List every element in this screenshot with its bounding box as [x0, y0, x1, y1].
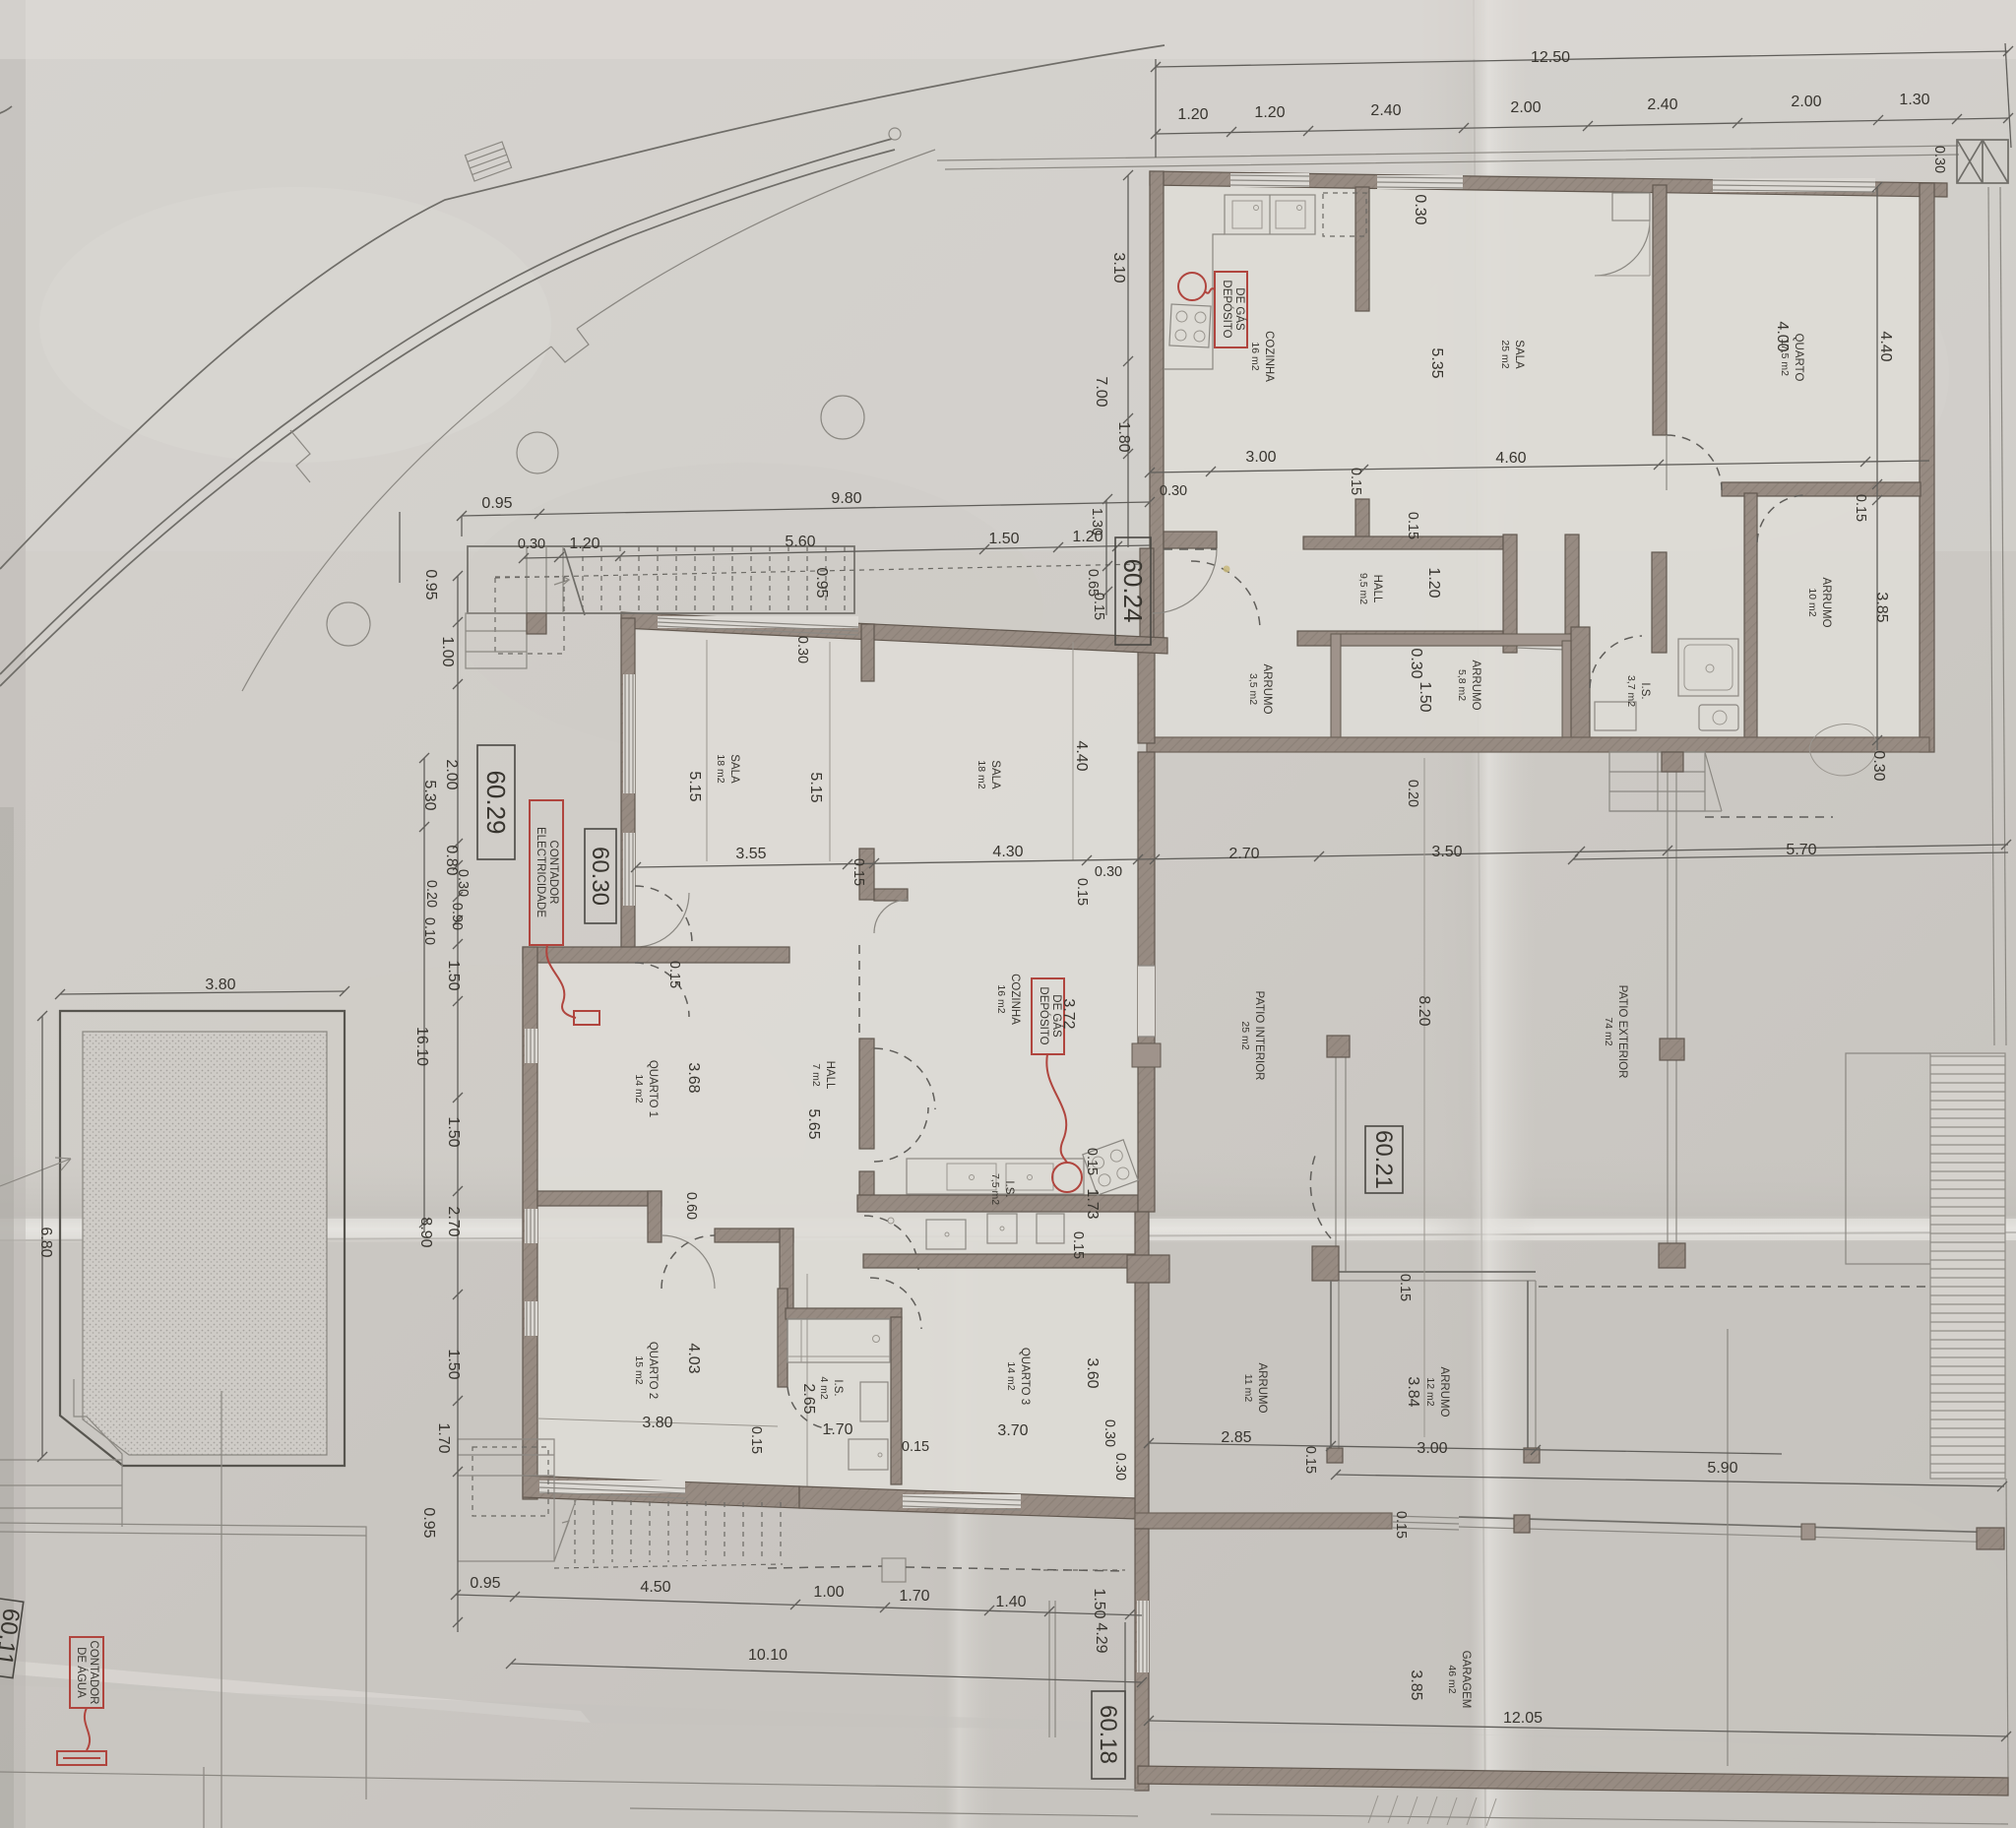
svg-text:12 m2: 12 m2	[1424, 1377, 1436, 1406]
svg-text:1.50: 1.50	[1091, 1588, 1107, 1618]
svg-text:3,5 m2: 3,5 m2	[1247, 673, 1259, 705]
svg-text:14 m2: 14 m2	[633, 1074, 645, 1103]
svg-text:2.00: 2.00	[1791, 94, 1821, 110]
svg-text:5.65: 5.65	[805, 1108, 822, 1139]
svg-text:0.95: 0.95	[813, 567, 830, 598]
svg-text:0.15: 0.15	[1393, 1511, 1409, 1539]
svg-text:1.80: 1.80	[1115, 421, 1132, 452]
svg-text:8.20: 8.20	[1416, 995, 1432, 1026]
svg-text:4.40: 4.40	[1877, 331, 1894, 361]
svg-text:1.40: 1.40	[995, 1594, 1026, 1610]
svg-text:0.30: 0.30	[1160, 483, 1187, 499]
svg-text:0.15: 0.15	[1853, 494, 1868, 522]
svg-text:0.30: 0.30	[1931, 146, 1947, 173]
svg-text:5,8 m2: 5,8 m2	[1456, 669, 1468, 701]
svg-text:ELECTRICIDADE: ELECTRICIDADE	[535, 827, 546, 917]
svg-text:5.90: 5.90	[1707, 1460, 1737, 1477]
svg-text:COZINHA: COZINHA	[1009, 974, 1021, 1025]
svg-text:ARRUMO: ARRUMO	[1256, 1362, 1268, 1413]
svg-text:11 m2: 11 m2	[1242, 1374, 1254, 1403]
svg-text:0.95: 0.95	[420, 1507, 437, 1538]
svg-text:0.15: 0.15	[748, 1426, 764, 1454]
svg-text:60.18: 60.18	[1095, 1705, 1121, 1764]
svg-text:1.50: 1.50	[445, 1116, 462, 1147]
svg-text:QUARTO: QUARTO	[1793, 334, 1804, 382]
svg-text:25 m2: 25 m2	[1239, 1021, 1251, 1049]
svg-text:0.30: 0.30	[1408, 648, 1424, 678]
svg-text:74 m2: 74 m2	[1603, 1017, 1614, 1045]
svg-text:2.00: 2.00	[443, 759, 460, 789]
svg-text:SALA: SALA	[728, 754, 740, 784]
svg-text:COZINHA: COZINHA	[1263, 331, 1275, 382]
svg-text:CONTADOR: CONTADOR	[88, 1641, 99, 1705]
svg-text:1.20: 1.20	[1425, 567, 1442, 598]
svg-text:0.10: 0.10	[421, 917, 437, 945]
svg-text:1.20: 1.20	[1177, 106, 1208, 123]
svg-text:CONTADOR: CONTADOR	[547, 841, 559, 905]
svg-text:7 m2: 7 m2	[810, 1063, 822, 1087]
svg-text:12.05: 12.05	[1503, 1710, 1543, 1727]
svg-text:0.15: 0.15	[1302, 1446, 1318, 1474]
svg-text:2.40: 2.40	[1370, 102, 1401, 119]
svg-text:0.30: 0.30	[794, 636, 810, 663]
svg-text:1.50: 1.50	[988, 531, 1019, 547]
svg-text:2.65: 2.65	[800, 1383, 817, 1414]
svg-text:0.15: 0.15	[1074, 878, 1090, 906]
svg-text:0.30: 0.30	[1095, 864, 1122, 880]
svg-text:0.90: 0.90	[449, 903, 465, 930]
svg-text:4.50: 4.50	[640, 1579, 670, 1596]
svg-text:3.00: 3.00	[1245, 449, 1276, 466]
svg-text:HALL: HALL	[824, 1061, 836, 1090]
svg-text:1.00: 1.00	[439, 636, 456, 666]
svg-text:25 m2: 25 m2	[1499, 340, 1511, 368]
svg-text:I.S.: I.S.	[832, 1379, 844, 1396]
svg-text:1.50: 1.50	[1417, 681, 1433, 712]
svg-text:5.70: 5.70	[1786, 842, 1816, 858]
svg-text:5.35: 5.35	[1428, 347, 1445, 378]
svg-text:3.68: 3.68	[685, 1062, 702, 1093]
svg-text:1.30: 1.30	[1899, 92, 1929, 108]
svg-text:0.30: 0.30	[455, 869, 471, 897]
svg-text:0.15: 0.15	[1405, 512, 1420, 539]
svg-text:0.30: 0.30	[1412, 194, 1428, 224]
svg-text:3.60: 3.60	[1084, 1357, 1101, 1388]
svg-text:16.10: 16.10	[413, 1027, 430, 1066]
svg-text:14 m2: 14 m2	[1005, 1361, 1017, 1390]
svg-text:0.20: 0.20	[423, 880, 439, 908]
svg-text:QUARTO 2: QUARTO 2	[647, 1342, 659, 1399]
svg-text:1.73: 1.73	[1084, 1188, 1101, 1219]
svg-text:GARAGEM: GARAGEM	[1460, 1651, 1472, 1709]
svg-text:1.20: 1.20	[569, 536, 599, 552]
svg-text:1.70: 1.70	[899, 1588, 929, 1605]
svg-text:1.20: 1.20	[1072, 529, 1102, 545]
svg-text:4.40: 4.40	[1073, 740, 1090, 771]
svg-text:8.90: 8.90	[417, 1217, 434, 1247]
svg-text:3.85: 3.85	[1873, 592, 1890, 622]
svg-text:0.15: 0.15	[1070, 1231, 1086, 1259]
svg-text:7.00: 7.00	[1093, 376, 1109, 407]
svg-text:1.20: 1.20	[1254, 104, 1285, 121]
svg-text:2.40: 2.40	[1647, 96, 1677, 113]
svg-text:3.72: 3.72	[1060, 998, 1077, 1029]
svg-text:3.80: 3.80	[642, 1415, 672, 1431]
svg-text:60.30: 60.30	[587, 847, 613, 906]
svg-text:16 m2: 16 m2	[1249, 342, 1261, 370]
svg-text:2.70: 2.70	[445, 1206, 462, 1236]
svg-text:9,5 m2: 9,5 m2	[1357, 573, 1369, 604]
svg-text:ARRUMO: ARRUMO	[1820, 577, 1832, 627]
svg-text:3.55: 3.55	[735, 846, 766, 862]
svg-text:ARRUMO: ARRUMO	[1470, 660, 1481, 710]
svg-text:1.70: 1.70	[822, 1421, 852, 1438]
svg-text:10 m2: 10 m2	[1806, 588, 1818, 616]
svg-text:15 m2: 15 m2	[633, 1355, 645, 1384]
svg-text:0.15: 0.15	[666, 961, 682, 988]
svg-text:5.30: 5.30	[421, 780, 438, 810]
svg-text:1.50: 1.50	[445, 960, 462, 990]
svg-text:ARRUMO: ARRUMO	[1261, 663, 1273, 714]
svg-text:I.S.: I.S.	[1639, 682, 1651, 699]
svg-text:60.21: 60.21	[1370, 1130, 1397, 1189]
svg-text:SALA: SALA	[989, 760, 1001, 789]
svg-text:QUARTO 3: QUARTO 3	[1019, 1348, 1031, 1405]
svg-text:ARRUMO: ARRUMO	[1438, 1366, 1450, 1417]
svg-text:DE GÁS: DE GÁS	[1233, 287, 1246, 331]
svg-text:0.15: 0.15	[1091, 593, 1106, 620]
svg-text:0.30: 0.30	[1102, 1419, 1117, 1447]
svg-text:16 m2: 16 m2	[995, 984, 1007, 1013]
svg-text:0.30: 0.30	[1112, 1453, 1128, 1481]
svg-text:PATIO EXTERIOR: PATIO EXTERIOR	[1616, 985, 1628, 1079]
svg-text:0.95: 0.95	[481, 495, 512, 512]
svg-text:PATIO INTERIOR: PATIO INTERIOR	[1253, 991, 1265, 1081]
svg-text:2.00: 2.00	[1510, 99, 1541, 116]
svg-text:60.24: 60.24	[1118, 558, 1148, 622]
svg-text:0.15: 0.15	[1348, 468, 1363, 495]
svg-text:0.95: 0.95	[422, 569, 439, 599]
svg-text:0.30: 0.30	[1870, 750, 1887, 781]
svg-text:18 m2: 18 m2	[976, 760, 987, 788]
svg-text:10.10: 10.10	[748, 1647, 787, 1664]
svg-text:3.50: 3.50	[1431, 844, 1462, 860]
svg-text:0.15: 0.15	[1397, 1274, 1413, 1301]
svg-text:2.70: 2.70	[1228, 846, 1259, 862]
svg-text:4.00: 4.00	[1774, 321, 1791, 351]
svg-text:SALA: SALA	[1513, 340, 1525, 369]
svg-text:7,5 m2: 7,5 m2	[989, 1173, 1001, 1205]
svg-text:3.00: 3.00	[1417, 1440, 1447, 1457]
svg-text:18 m2: 18 m2	[715, 754, 726, 783]
svg-text:60.29: 60.29	[481, 770, 511, 834]
svg-text:0.20: 0.20	[1405, 780, 1420, 807]
svg-text:2.85: 2.85	[1221, 1429, 1251, 1446]
svg-text:4 m2: 4 m2	[818, 1376, 830, 1400]
svg-text:0.15: 0.15	[902, 1439, 929, 1455]
svg-text:0.15: 0.15	[1084, 1148, 1100, 1175]
svg-text:HALL: HALL	[1371, 575, 1383, 603]
svg-text:5.15: 5.15	[807, 772, 824, 802]
svg-text:5.60: 5.60	[785, 534, 815, 550]
svg-text:0.30: 0.30	[518, 536, 545, 552]
svg-text:0.15: 0.15	[850, 858, 866, 886]
svg-text:4.60: 4.60	[1495, 450, 1526, 467]
svg-text:1.00: 1.00	[813, 1584, 844, 1601]
svg-text:QUARTO 1: QUARTO 1	[647, 1060, 659, 1117]
svg-text:0.95: 0.95	[470, 1575, 500, 1592]
svg-text:3,7 m2: 3,7 m2	[1625, 675, 1637, 707]
svg-text:12.50: 12.50	[1531, 49, 1570, 66]
svg-text:4.29: 4.29	[1093, 1622, 1109, 1653]
svg-text:I.S.: I.S.	[1003, 1180, 1015, 1197]
svg-text:DEPÓSITO: DEPÓSITO	[1221, 280, 1233, 338]
svg-text:9.80: 9.80	[831, 490, 861, 507]
svg-text:3.10: 3.10	[1110, 252, 1127, 283]
svg-text:3.70: 3.70	[997, 1422, 1028, 1439]
svg-text:DEPÓSITO: DEPÓSITO	[1038, 986, 1050, 1044]
svg-text:3.80: 3.80	[205, 977, 235, 993]
svg-text:5.15: 5.15	[686, 771, 703, 801]
svg-text:4.03: 4.03	[685, 1343, 702, 1373]
svg-text:46 m2: 46 m2	[1446, 1665, 1458, 1693]
svg-text:6.80: 6.80	[37, 1227, 54, 1257]
svg-text:DE ÁGUA: DE ÁGUA	[75, 1647, 88, 1698]
svg-text:0.60: 0.60	[683, 1192, 699, 1220]
svg-text:3.85: 3.85	[1408, 1670, 1424, 1700]
svg-text:4.30: 4.30	[992, 844, 1023, 860]
svg-text:3.84: 3.84	[1405, 1376, 1421, 1407]
svg-text:1.70: 1.70	[435, 1422, 452, 1453]
svg-text:1.50: 1.50	[445, 1349, 462, 1379]
